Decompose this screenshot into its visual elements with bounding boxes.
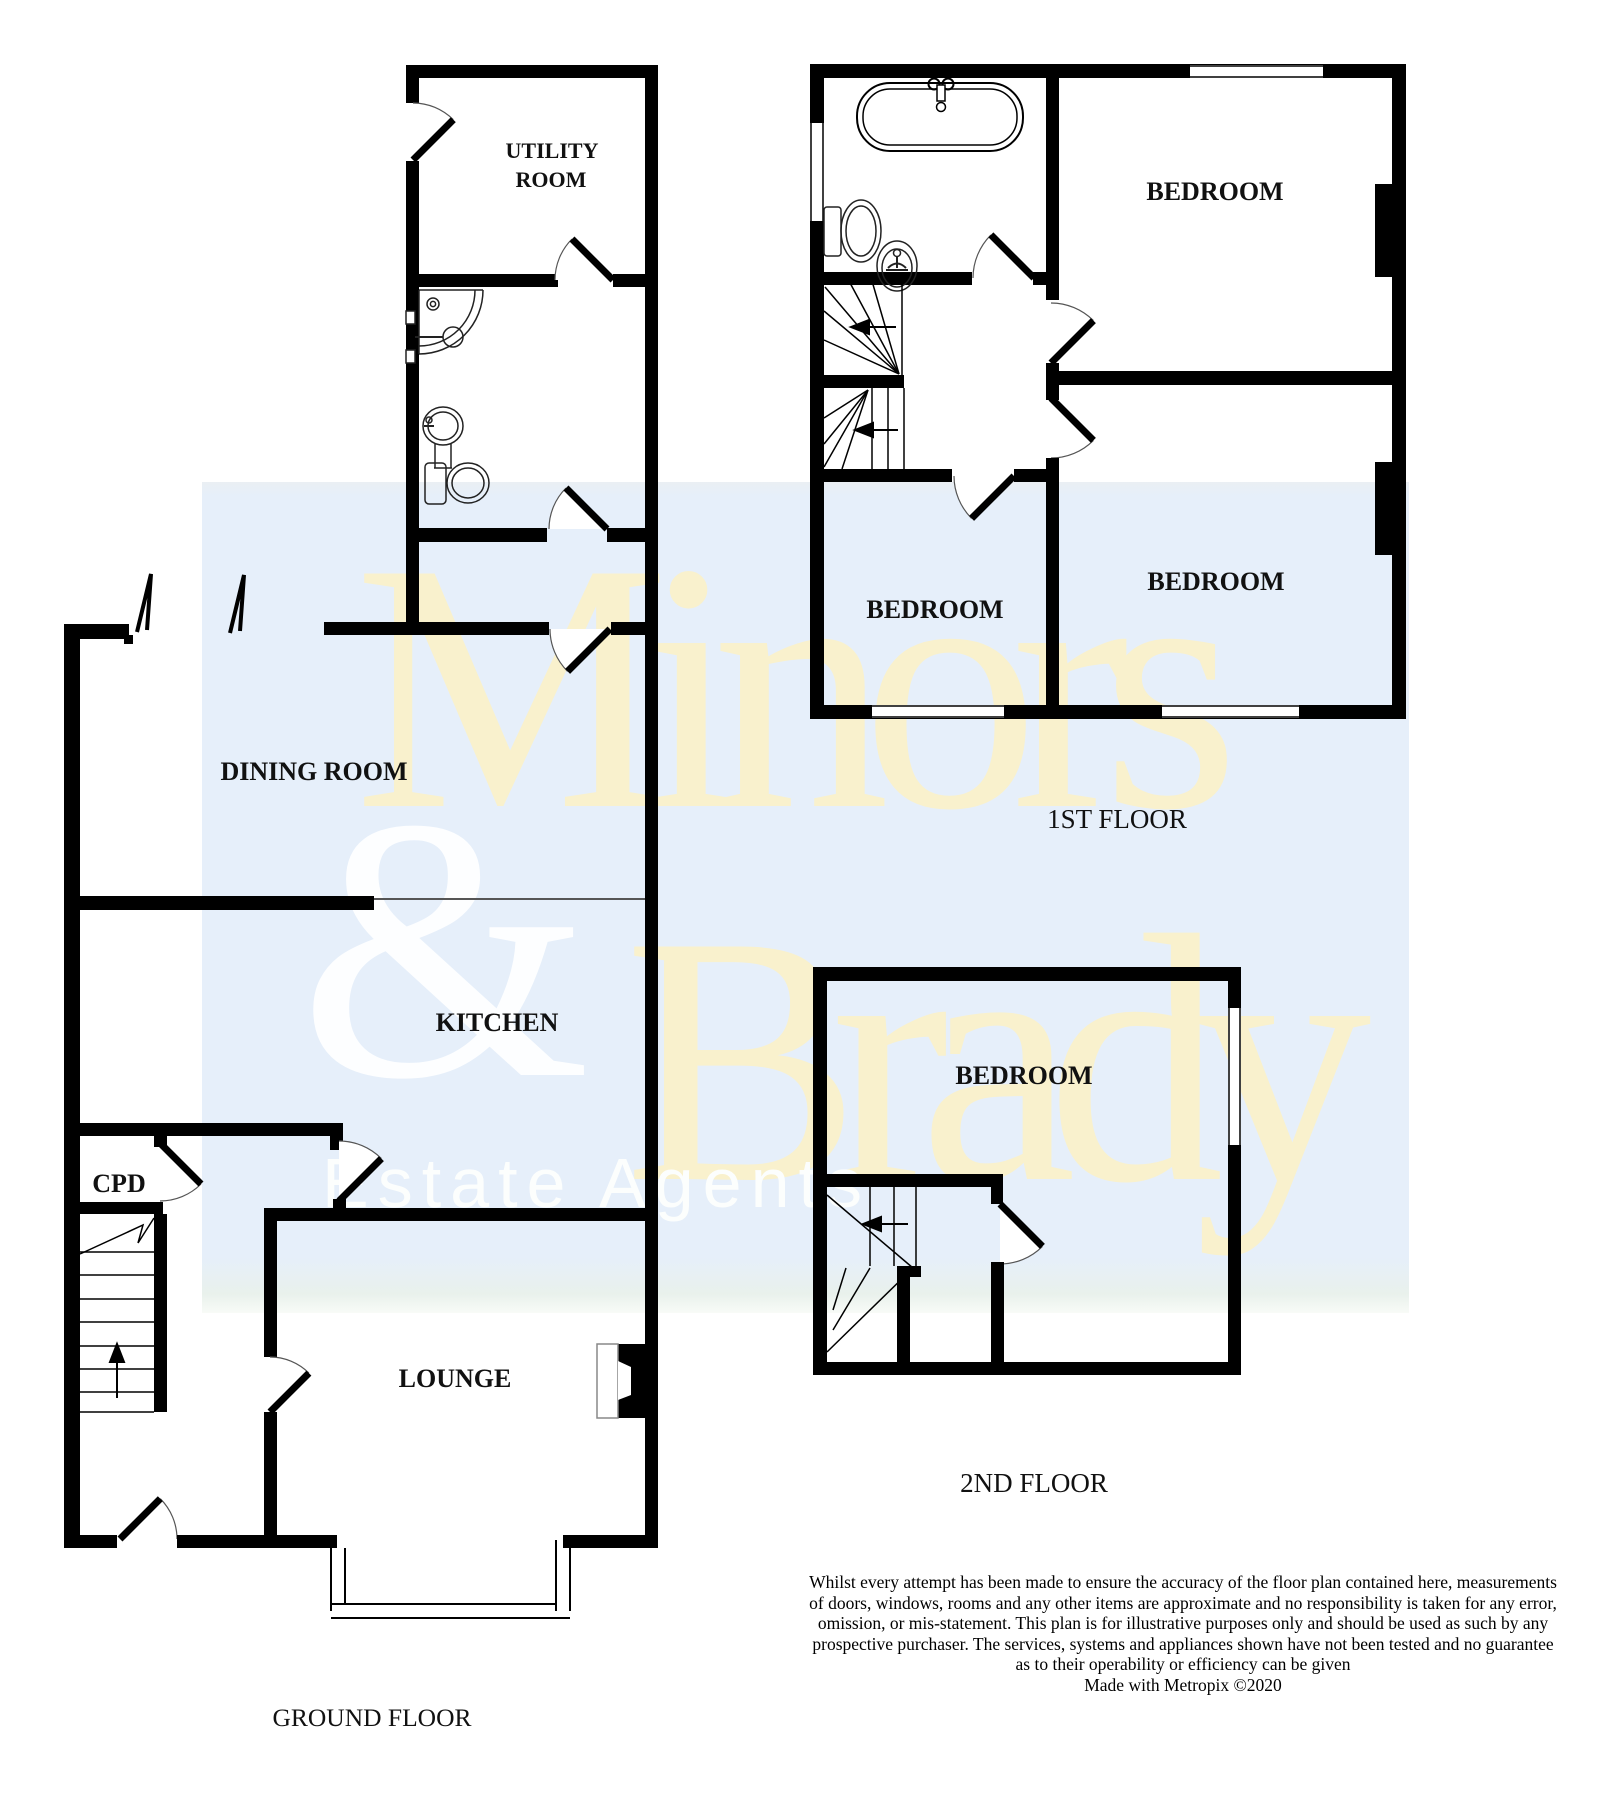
- svg-text:ROOM: ROOM: [516, 167, 587, 192]
- svg-text:DINING ROOM: DINING ROOM: [220, 757, 407, 786]
- svg-text:1ST FLOOR: 1ST FLOOR: [1047, 804, 1187, 834]
- svg-text:BEDROOM: BEDROOM: [955, 1061, 1092, 1090]
- svg-text:CPD: CPD: [92, 1169, 145, 1198]
- svg-text:BEDROOM: BEDROOM: [866, 595, 1003, 624]
- svg-text:UTILITY: UTILITY: [506, 138, 599, 163]
- svg-text:BEDROOM: BEDROOM: [1146, 177, 1283, 206]
- svg-text:GROUND FLOOR: GROUND FLOOR: [272, 1703, 471, 1732]
- svg-text:BEDROOM: BEDROOM: [1147, 567, 1284, 596]
- svg-text:2ND FLOOR: 2ND FLOOR: [960, 1468, 1108, 1498]
- svg-text:LOUNGE: LOUNGE: [399, 1364, 512, 1393]
- svg-text:KITCHEN: KITCHEN: [436, 1008, 559, 1037]
